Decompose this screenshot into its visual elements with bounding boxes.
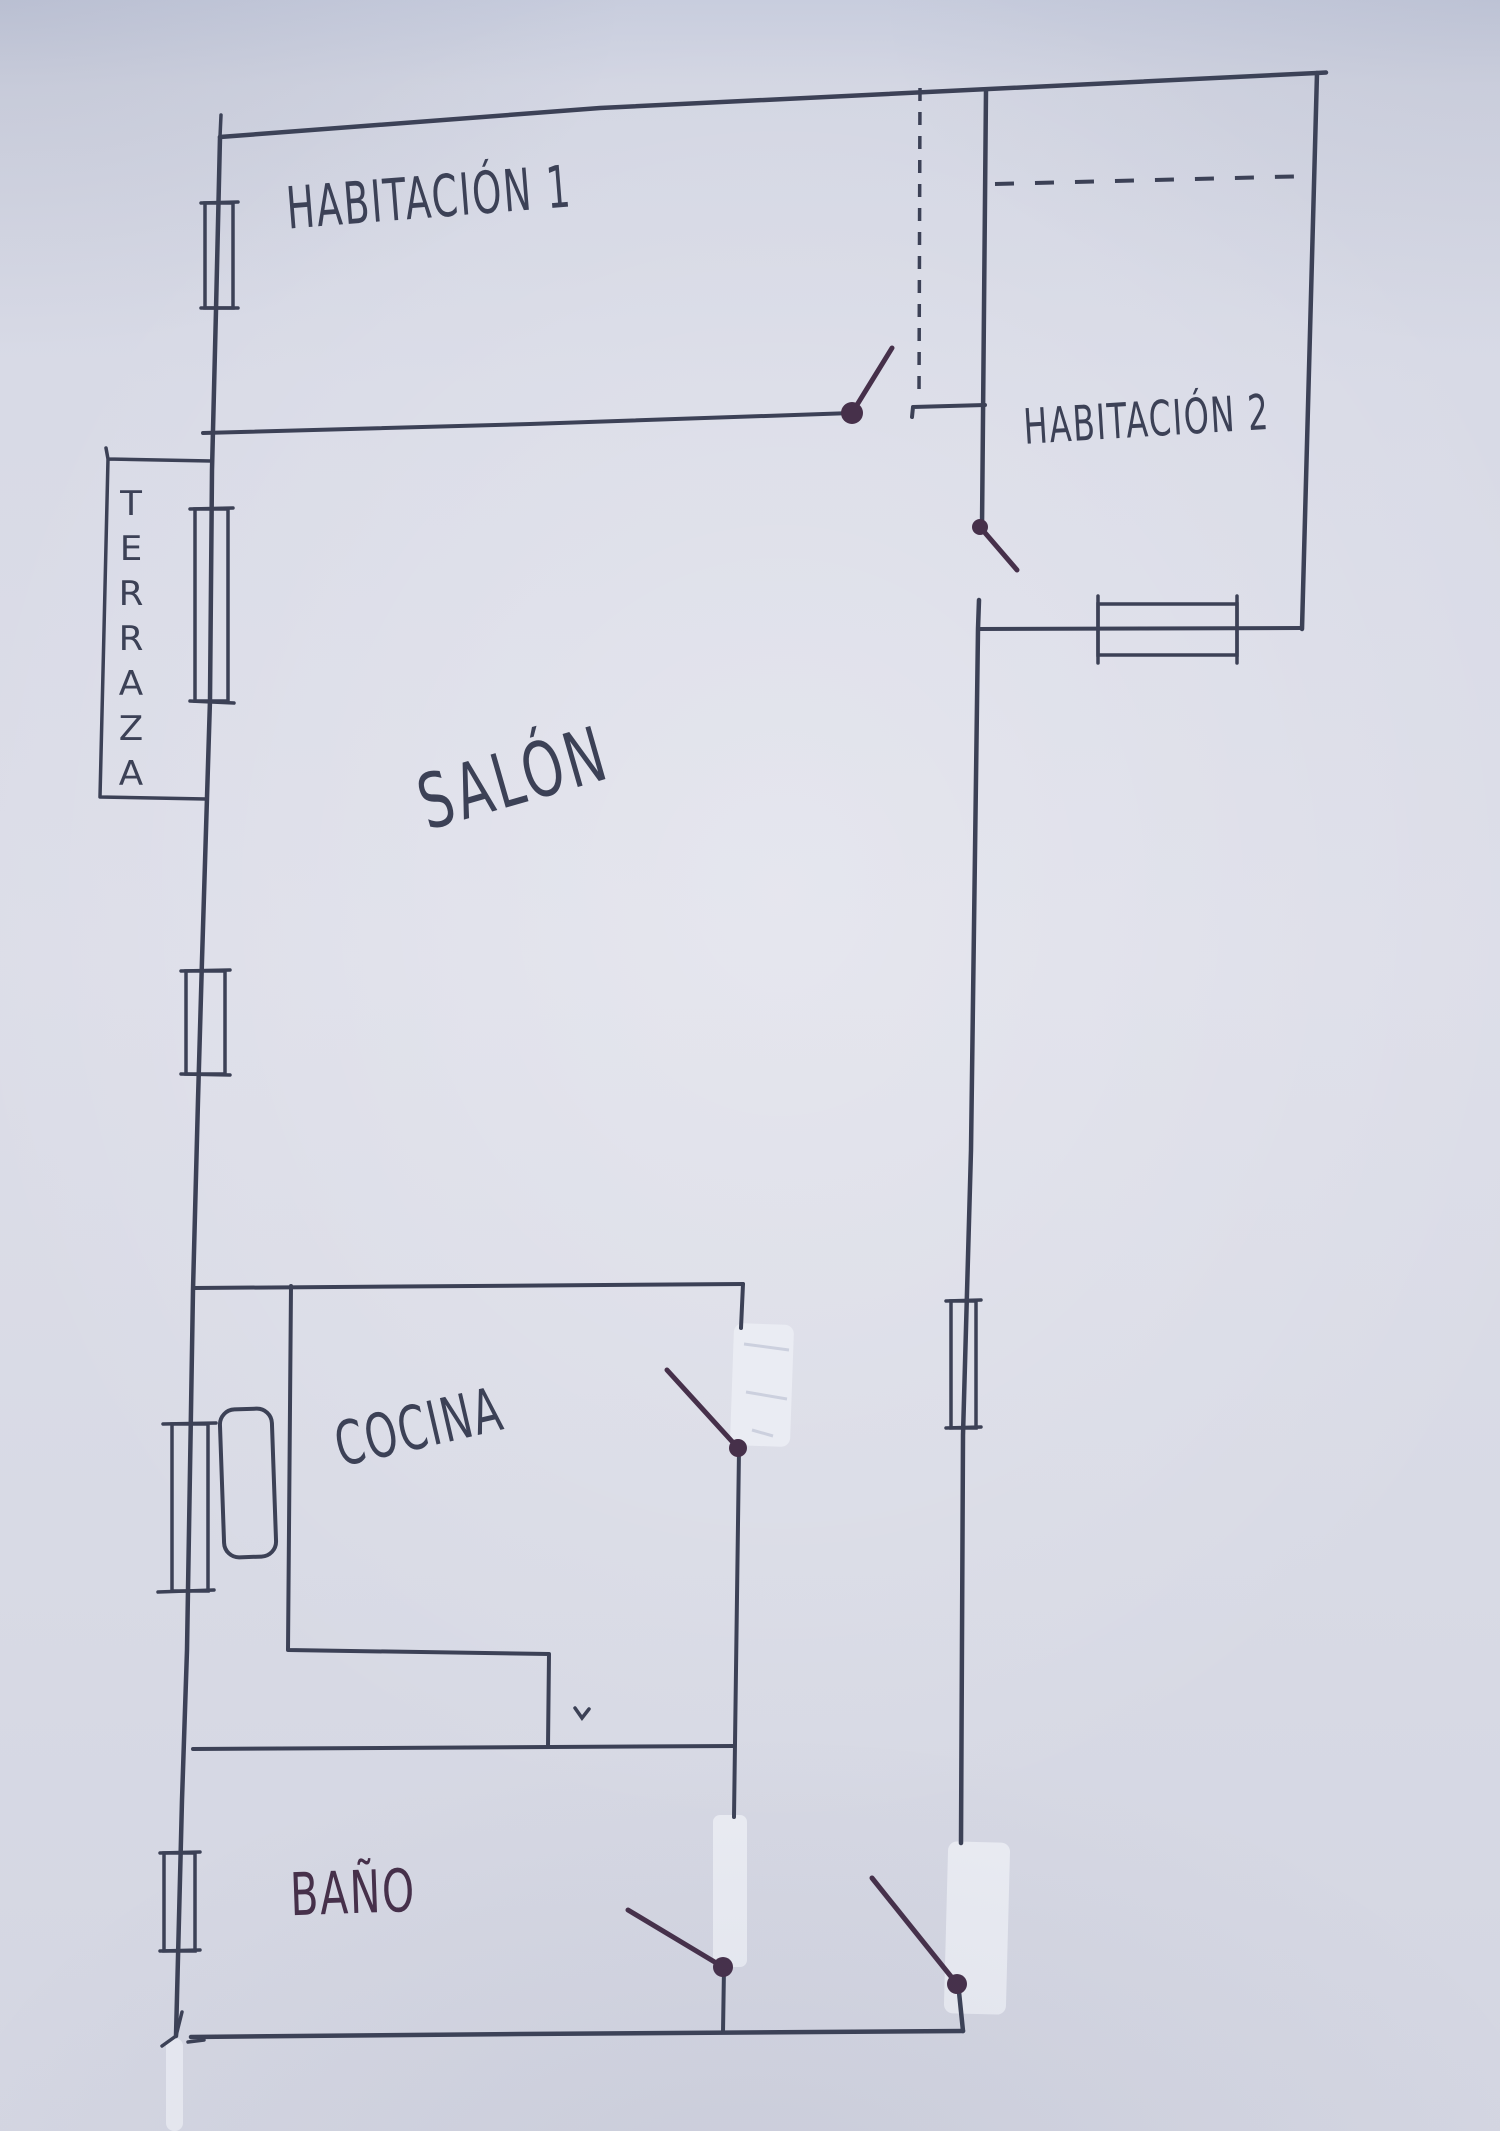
whiteout-cocina-door xyxy=(730,1323,794,1447)
dashed-wardrobe-line xyxy=(995,176,1312,184)
dashed-passage-line xyxy=(919,88,920,399)
tick-vee-mark xyxy=(575,1708,589,1718)
wall-top xyxy=(220,73,1326,138)
wall-corridor-right-upper xyxy=(982,90,986,527)
wall-right-habitacion2 xyxy=(1302,73,1317,629)
label-terraza: TERRAZA xyxy=(110,484,152,799)
wall-habitacion1-bottom xyxy=(203,413,852,433)
outer-walls xyxy=(176,73,1326,2038)
wall-passage-connector xyxy=(912,405,985,417)
wall-cocina-right xyxy=(734,1450,739,1817)
whiteout-bano-door xyxy=(713,1815,747,1967)
counter-cocina xyxy=(288,1286,549,1746)
wall-habitacion2-bottom xyxy=(978,628,1302,629)
tick-bottomleft-dash xyxy=(188,2040,204,2042)
window-icon-salon-small xyxy=(181,970,230,1075)
wall-bano-top xyxy=(193,1746,733,1749)
wall-left xyxy=(176,137,220,2036)
pen-marks xyxy=(162,115,589,2046)
floorplan-svg xyxy=(0,0,1500,2131)
floorplan-photo: HABITACIÓN 1 HABITACIÓN 2 SALÓN TERRAZA … xyxy=(0,0,1500,2131)
wall-cocina-right-stub xyxy=(741,1284,743,1328)
wall-bottom xyxy=(191,2031,963,2037)
wall-bano-right-stub xyxy=(723,1968,724,2032)
dashed-lines xyxy=(919,88,1312,399)
fridge-outline xyxy=(219,1408,276,1558)
whiteout-patches xyxy=(166,1323,1010,2131)
whiteout-bottom-streak xyxy=(166,2038,183,2131)
tick-topleft-corner xyxy=(220,115,221,137)
wall-corridor-right-lower xyxy=(961,600,979,1843)
label-bano: BAÑO xyxy=(289,1857,417,1930)
door-icon-habitacion1 xyxy=(841,348,892,424)
interior-walls xyxy=(193,405,1302,2032)
wall-cocina-top xyxy=(195,1284,743,1288)
door-icon-habitacion2 xyxy=(972,519,1017,570)
window-icons xyxy=(158,202,1237,1951)
